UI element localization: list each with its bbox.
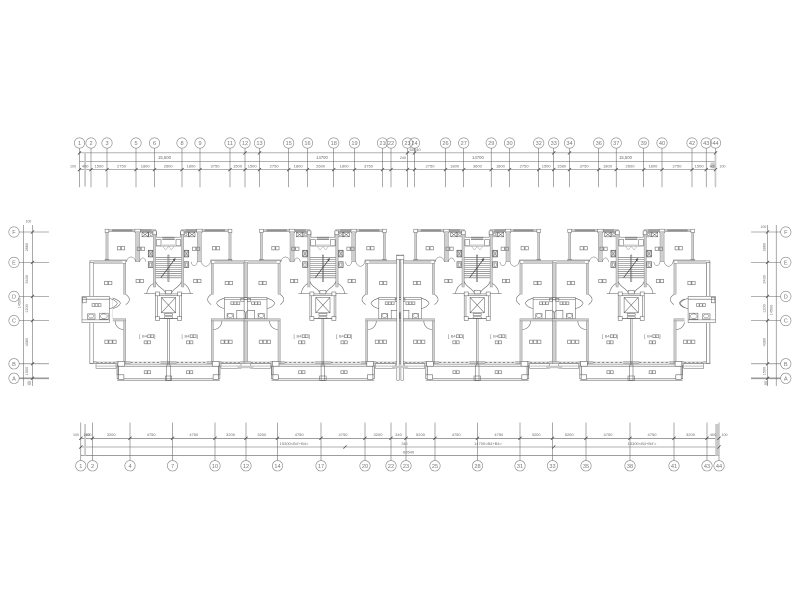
- svg-text:4750: 4750: [604, 432, 614, 437]
- svg-text:1200: 1200: [763, 304, 767, 312]
- svg-text:4380: 4380: [763, 338, 767, 346]
- svg-text:38: 38: [627, 464, 633, 470]
- svg-text:1500: 1500: [25, 367, 29, 375]
- svg-text:2750: 2750: [270, 163, 280, 168]
- svg-text:2750: 2750: [117, 163, 127, 168]
- svg-text:1800: 1800: [450, 163, 460, 168]
- svg-text:43: 43: [704, 464, 710, 470]
- svg-text:B4: B4: [296, 334, 302, 339]
- svg-text:44: 44: [712, 141, 718, 147]
- svg-text:34: 34: [566, 141, 572, 147]
- svg-text:12: 12: [243, 464, 249, 470]
- svg-text:5: 5: [134, 141, 137, 147]
- svg-text:4: 4: [128, 464, 131, 470]
- svg-text:14500: 14500: [18, 298, 22, 309]
- svg-text:7: 7: [171, 464, 174, 470]
- svg-text:22: 22: [388, 141, 394, 147]
- svg-text:1800: 1800: [648, 163, 658, 168]
- svg-text:40: 40: [659, 141, 665, 147]
- svg-text:9: 9: [198, 141, 201, 147]
- svg-text:4750: 4750: [452, 432, 462, 437]
- svg-text:18: 18: [331, 141, 337, 147]
- svg-text:D: D: [12, 295, 16, 301]
- svg-text:14700: 14700: [472, 155, 484, 160]
- svg-text:1800: 1800: [496, 163, 506, 168]
- svg-text:44: 44: [716, 464, 722, 470]
- svg-text:]: ]: [351, 334, 352, 340]
- svg-text:35: 35: [583, 464, 589, 470]
- svg-text:15: 15: [286, 141, 292, 147]
- svg-text:400: 400: [710, 432, 717, 437]
- svg-text:25: 25: [432, 464, 438, 470]
- svg-text:14700<B4+B4>: 14700<B4+B4>: [474, 441, 503, 446]
- svg-text:3600: 3600: [473, 163, 483, 168]
- svg-text:2750: 2750: [426, 163, 436, 168]
- svg-text:24: 24: [411, 141, 417, 147]
- svg-text:33: 33: [549, 464, 555, 470]
- svg-text:100: 100: [722, 433, 728, 437]
- svg-text:32: 32: [536, 141, 542, 147]
- svg-text:39: 39: [641, 141, 647, 147]
- svg-text:5200: 5200: [416, 432, 426, 437]
- svg-text:]: ]: [463, 334, 464, 340]
- svg-text:4750: 4750: [494, 432, 504, 437]
- svg-text:1800: 1800: [340, 163, 350, 168]
- svg-text:60540: 60540: [403, 450, 415, 455]
- svg-text:4750: 4750: [189, 432, 199, 437]
- svg-text:B: B: [784, 362, 788, 368]
- svg-text:10: 10: [212, 464, 218, 470]
- svg-text:20: 20: [362, 464, 368, 470]
- svg-text:2600: 2600: [164, 163, 174, 168]
- svg-text:340: 340: [395, 432, 402, 437]
- svg-text:3200: 3200: [532, 432, 542, 437]
- svg-text:14: 14: [274, 464, 280, 470]
- svg-text:1500: 1500: [95, 163, 105, 168]
- svg-text:15300<B4+B4'>: 15300<B4+B4'>: [628, 441, 657, 446]
- svg-text:2750: 2750: [673, 163, 683, 168]
- svg-text:4380: 4380: [25, 338, 29, 346]
- svg-text:3200: 3200: [226, 432, 236, 437]
- svg-text:3430: 3430: [763, 275, 767, 283]
- svg-text:36: 36: [596, 141, 602, 147]
- svg-text:12: 12: [242, 141, 248, 147]
- svg-text:30: 30: [506, 141, 512, 147]
- svg-text:37: 37: [613, 141, 619, 147]
- svg-text:4750: 4750: [295, 432, 305, 437]
- svg-text:F: F: [784, 230, 788, 236]
- svg-text:31: 31: [517, 464, 523, 470]
- svg-text:B: B: [12, 362, 16, 368]
- svg-text:16: 16: [304, 141, 310, 147]
- svg-text:3750: 3750: [580, 163, 590, 168]
- svg-text:1800: 1800: [603, 163, 613, 168]
- svg-text:15300<B4'+B4>: 15300<B4'+B4>: [280, 441, 309, 446]
- svg-text:E: E: [12, 261, 16, 267]
- svg-text:3200: 3200: [257, 432, 267, 437]
- svg-text:100: 100: [73, 433, 79, 437]
- svg-text:B4: B4: [493, 334, 499, 339]
- svg-text:3750: 3750: [364, 163, 374, 168]
- svg-text:3430: 3430: [25, 275, 29, 283]
- svg-text:33: 33: [551, 141, 557, 147]
- svg-text:240: 240: [400, 156, 406, 160]
- svg-text:1800: 1800: [187, 163, 197, 168]
- svg-text:2: 2: [91, 464, 94, 470]
- svg-text:15,500: 15,500: [158, 155, 171, 160]
- svg-text:19: 19: [351, 141, 357, 147]
- svg-text:4750: 4750: [339, 432, 349, 437]
- svg-text:400: 400: [710, 164, 716, 168]
- svg-text:3200: 3200: [107, 432, 117, 437]
- svg-text:27: 27: [461, 141, 467, 147]
- svg-text:41: 41: [671, 464, 677, 470]
- svg-text:3: 3: [105, 141, 108, 147]
- svg-text:100: 100: [761, 225, 767, 229]
- svg-text:15,500: 15,500: [619, 155, 632, 160]
- svg-text:100: 100: [70, 164, 76, 168]
- svg-text:400: 400: [86, 433, 92, 437]
- svg-text:]: ]: [309, 334, 310, 340]
- svg-text:22: 22: [388, 464, 394, 470]
- svg-text:8: 8: [180, 141, 183, 147]
- svg-text:B4: B4: [451, 334, 457, 339]
- svg-text:E: E: [784, 261, 788, 267]
- svg-text:14700: 14700: [316, 155, 328, 160]
- svg-text:43: 43: [703, 141, 709, 147]
- svg-text:]: ]: [197, 334, 198, 340]
- svg-text:F: F: [12, 230, 16, 236]
- svg-text:C: C: [12, 319, 16, 325]
- svg-text:1: 1: [78, 141, 81, 147]
- svg-text:1500: 1500: [763, 367, 767, 375]
- svg-text:3750: 3750: [211, 163, 221, 168]
- svg-text:100: 100: [720, 164, 726, 168]
- svg-text:1: 1: [79, 464, 82, 470]
- svg-text:B4: B4: [339, 334, 345, 339]
- svg-text:1200: 1200: [25, 304, 29, 312]
- svg-text:]: ]: [659, 334, 660, 340]
- svg-text:B4: B4: [142, 334, 148, 339]
- svg-text:4750: 4750: [147, 432, 157, 437]
- svg-text:]: ]: [505, 334, 506, 340]
- svg-text:2750: 2750: [520, 163, 530, 168]
- svg-text:]: ]: [617, 334, 618, 340]
- svg-text:2880: 2880: [25, 243, 29, 251]
- svg-text:1500: 1500: [695, 163, 705, 168]
- svg-text:29: 29: [488, 141, 494, 147]
- svg-text:]: ]: [154, 334, 155, 340]
- svg-text:100: 100: [26, 220, 32, 224]
- svg-text:1500: 1500: [233, 163, 243, 168]
- svg-text:13: 13: [256, 141, 262, 147]
- svg-text:2880: 2880: [763, 243, 767, 251]
- svg-text:3200: 3200: [374, 432, 384, 437]
- svg-text:23: 23: [403, 464, 409, 470]
- svg-text:B4: B4: [605, 334, 611, 339]
- svg-text:1500: 1500: [542, 163, 552, 168]
- svg-text:60540: 60540: [410, 147, 422, 152]
- svg-text:2: 2: [89, 141, 92, 147]
- svg-text:2600: 2600: [316, 163, 326, 168]
- svg-text:1800: 1800: [141, 163, 151, 168]
- svg-text:26: 26: [442, 141, 448, 147]
- svg-text:6: 6: [153, 141, 156, 147]
- svg-text:A: A: [12, 376, 16, 382]
- svg-text:1800: 1800: [294, 163, 304, 168]
- svg-text:1500: 1500: [248, 163, 258, 168]
- svg-text:B4: B4: [647, 334, 653, 339]
- svg-text:14500: 14500: [770, 305, 774, 316]
- svg-text:2600: 2600: [626, 163, 636, 168]
- svg-text:C: C: [784, 319, 788, 325]
- svg-text:4750: 4750: [648, 432, 658, 437]
- svg-text:3200: 3200: [686, 432, 696, 437]
- svg-text:D: D: [784, 295, 788, 301]
- svg-text:21: 21: [379, 141, 385, 147]
- svg-text:1580: 1580: [557, 163, 567, 168]
- svg-text:28: 28: [474, 464, 480, 470]
- svg-text:340: 340: [402, 442, 408, 446]
- svg-text:42: 42: [689, 141, 695, 147]
- svg-text:400: 400: [82, 163, 89, 168]
- svg-text:A: A: [784, 376, 788, 382]
- svg-text:11: 11: [227, 141, 233, 147]
- svg-text:B4: B4: [184, 334, 190, 339]
- svg-text:17: 17: [318, 464, 324, 470]
- svg-text:5200: 5200: [565, 432, 575, 437]
